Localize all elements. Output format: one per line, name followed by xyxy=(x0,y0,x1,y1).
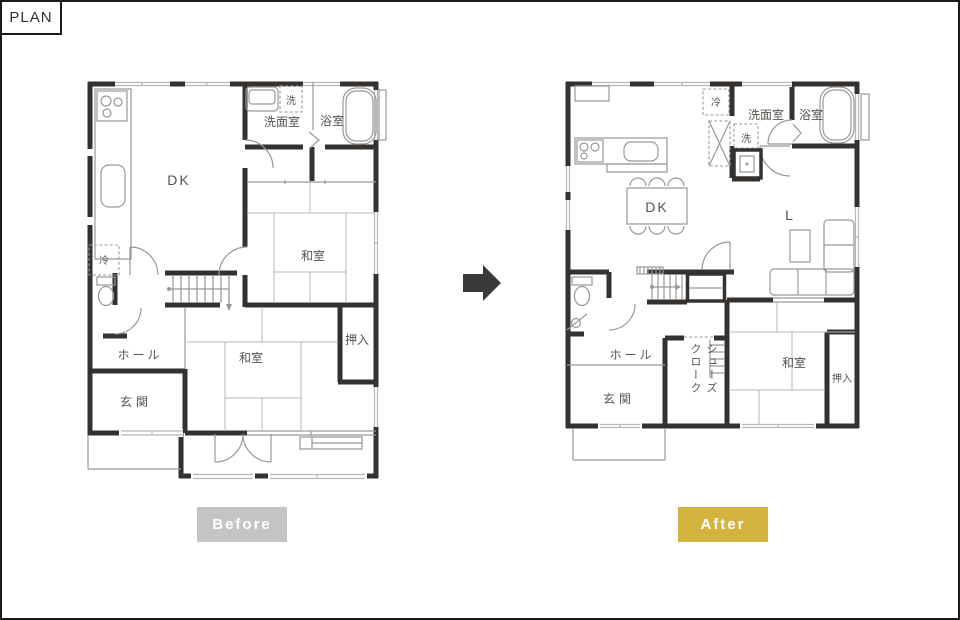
before-after-arrow-icon xyxy=(463,263,503,303)
plan-tag: PLAN xyxy=(2,2,62,35)
room-label-living: L xyxy=(785,207,795,223)
before-floor-plan: DK 洗面室 浴室 和室 和室 押入 ホール 玄関 冷 洗 xyxy=(85,80,387,485)
room-label-entrance: 玄関 xyxy=(120,394,152,409)
washer-label: 洗 xyxy=(741,133,751,145)
before-toilet xyxy=(97,277,115,306)
before-badge: Before xyxy=(197,507,287,542)
room-label-hall: ホール xyxy=(117,348,162,362)
plan-tag-label: PLAN xyxy=(9,9,52,26)
room-label-japanese-room: 和室 xyxy=(782,355,806,370)
page: PLAN xyxy=(0,0,960,620)
after-kitchen xyxy=(575,86,667,172)
room-label-closet: 押入 xyxy=(345,333,369,347)
room-label-bathroom: 浴室 xyxy=(799,107,823,122)
after-badge: After xyxy=(678,507,768,542)
room-label-japanese-room-lower: 和室 xyxy=(239,350,263,365)
fridge-label: 冷 xyxy=(711,96,721,109)
room-label-hall: ホール xyxy=(609,348,654,362)
room-label-japanese-room-upper: 和室 xyxy=(301,248,325,263)
after-washroom-sink xyxy=(734,150,761,178)
after-sofa xyxy=(770,220,854,295)
room-label-washroom: 洗面室 xyxy=(264,114,300,129)
room-label-dk: DK xyxy=(645,199,668,215)
room-label-closet: 押入 xyxy=(832,372,852,385)
before-windows xyxy=(87,81,386,481)
fridge-label: 冷 xyxy=(99,254,109,267)
room-label-washroom: 洗面室 xyxy=(748,107,784,122)
before-washroom-sink xyxy=(246,87,278,111)
washer-label: 洗 xyxy=(286,95,296,107)
after-toilet xyxy=(567,277,592,330)
room-label-entrance: 玄関 xyxy=(603,391,635,406)
room-label-shoe-closet: シューズ クローク xyxy=(683,343,719,439)
room-label-dk: DK xyxy=(167,172,190,188)
room-label-bathroom: 浴室 xyxy=(320,113,344,128)
after-bathtub xyxy=(820,87,854,143)
before-kitchen xyxy=(95,89,131,259)
after-pantry xyxy=(709,121,730,166)
before-bathtub xyxy=(343,88,376,144)
